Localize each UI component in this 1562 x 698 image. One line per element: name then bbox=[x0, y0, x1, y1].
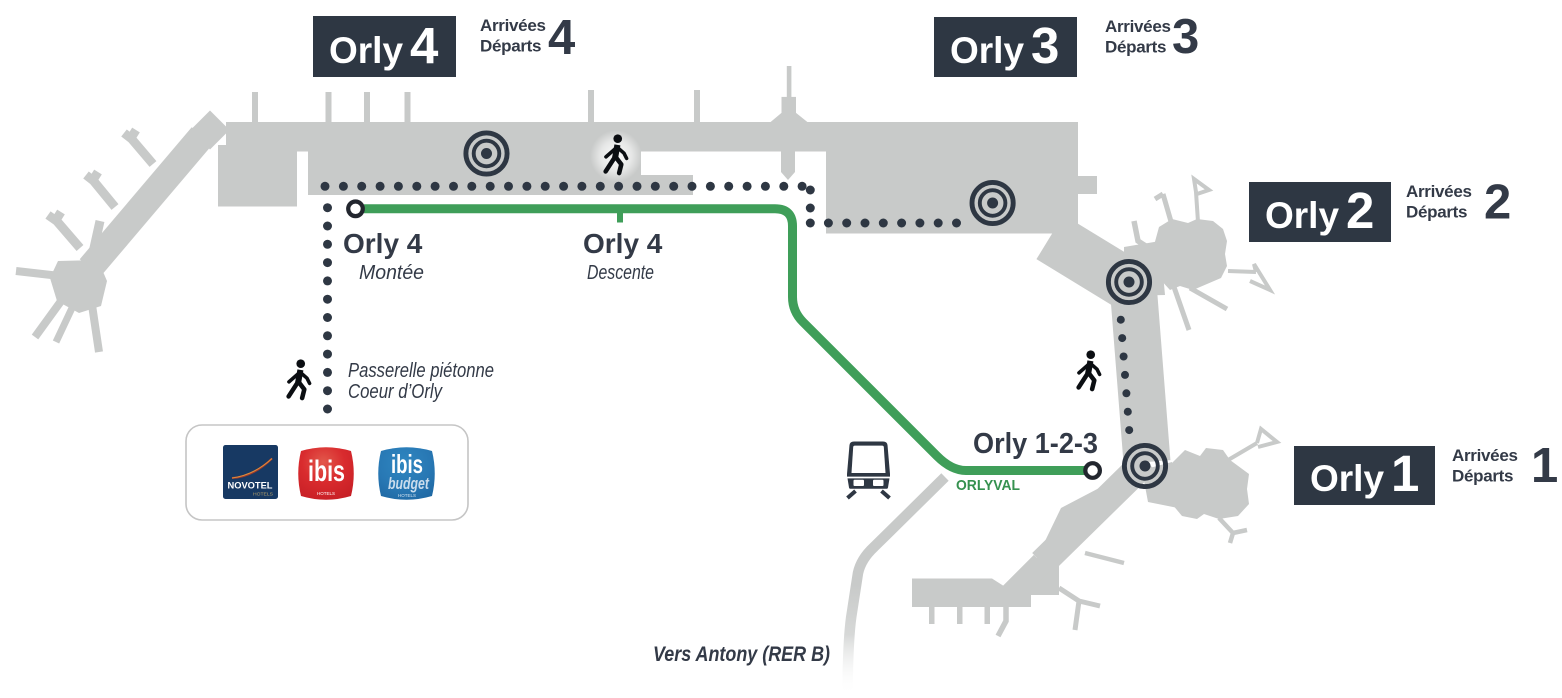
svg-text:Descente: Descente bbox=[587, 262, 654, 284]
svg-text:Départs: Départs bbox=[1105, 37, 1166, 56]
svg-text:3: 3 bbox=[1172, 10, 1199, 64]
svg-text:4: 4 bbox=[410, 17, 439, 74]
svg-text:Passerelle piétonne: Passerelle piétonne bbox=[348, 360, 494, 382]
svg-text:4: 4 bbox=[548, 11, 575, 65]
svg-text:Orly 4: Orly 4 bbox=[343, 228, 423, 259]
svg-text:Arrivées: Arrivées bbox=[1452, 446, 1518, 465]
svg-text:Départs: Départs bbox=[480, 36, 541, 55]
svg-text:Orly 4: Orly 4 bbox=[583, 228, 663, 259]
svg-text:budget: budget bbox=[388, 474, 430, 493]
svg-text:Orly: Orly bbox=[329, 30, 403, 71]
svg-text:1: 1 bbox=[1391, 445, 1419, 502]
svg-text:2: 2 bbox=[1346, 182, 1374, 239]
svg-text:ibis: ibis bbox=[308, 455, 345, 488]
svg-text:Orly: Orly bbox=[1310, 458, 1384, 499]
svg-text:HOTELS: HOTELS bbox=[253, 492, 273, 498]
svg-text:HOTELS: HOTELS bbox=[398, 493, 416, 499]
svg-text:HOTELS: HOTELS bbox=[317, 491, 335, 497]
svg-text:Vers Antony (RER B): Vers Antony (RER B) bbox=[653, 643, 830, 666]
svg-text:2: 2 bbox=[1484, 176, 1511, 230]
svg-text:NOVOTEL: NOVOTEL bbox=[228, 481, 273, 492]
svg-text:Arrivées: Arrivées bbox=[1406, 182, 1472, 201]
svg-text:ORLYVAL: ORLYVAL bbox=[956, 477, 1020, 494]
svg-text:Départs: Départs bbox=[1452, 466, 1513, 485]
svg-text:Orly 1-2-3: Orly 1-2-3 bbox=[973, 428, 1098, 460]
svg-text:Montée: Montée bbox=[359, 262, 424, 284]
svg-text:Orly: Orly bbox=[1265, 195, 1339, 236]
svg-text:1: 1 bbox=[1531, 439, 1558, 493]
svg-text:Orly: Orly bbox=[950, 30, 1024, 71]
svg-text:Départs: Départs bbox=[1406, 202, 1467, 221]
svg-text:Arrivées: Arrivées bbox=[480, 16, 546, 35]
svg-text:Arrivées: Arrivées bbox=[1105, 17, 1171, 36]
svg-text:Coeur d’Orly: Coeur d’Orly bbox=[348, 381, 443, 403]
svg-text:3: 3 bbox=[1031, 17, 1059, 74]
